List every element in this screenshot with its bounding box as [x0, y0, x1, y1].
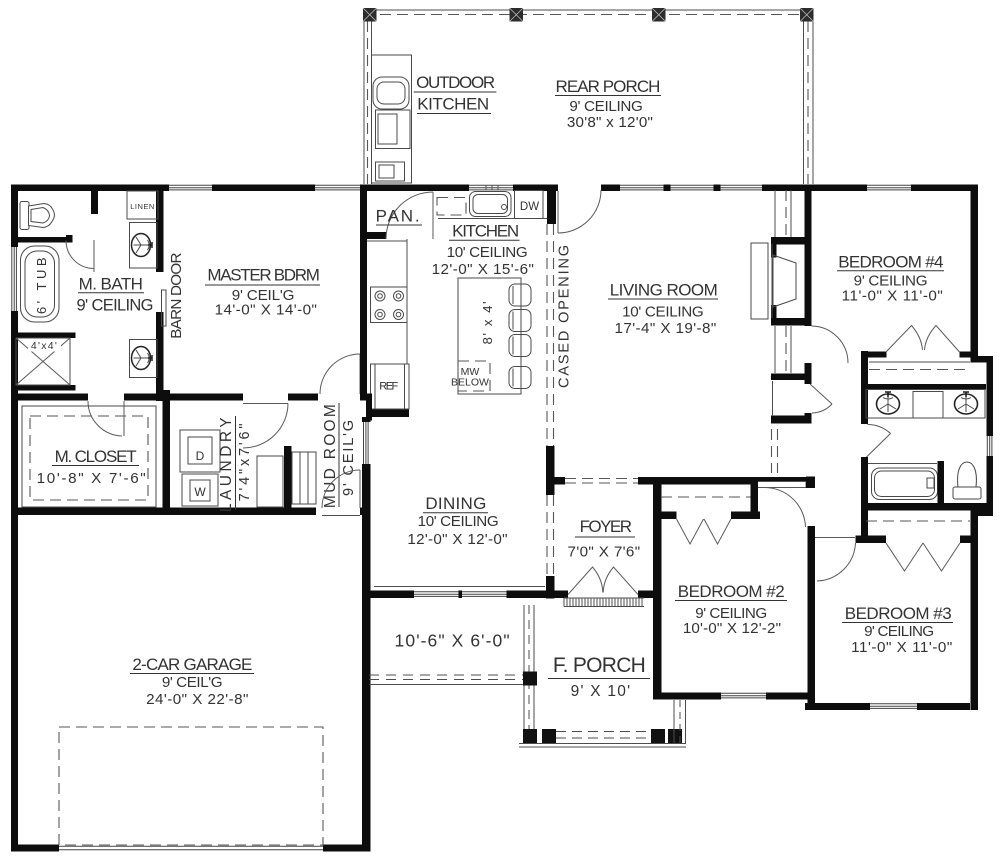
- svg-text:6' TUB: 6' TUB: [34, 254, 49, 314]
- svg-text:9' CEILING: 9' CEILING: [864, 623, 933, 640]
- svg-text:9' CEILING: 9' CEILING: [569, 98, 642, 115]
- svg-text:LIVING ROOM: LIVING ROOM: [610, 280, 718, 299]
- svg-text:PAN.: PAN.: [376, 207, 422, 226]
- svg-text:MUD ROOM: MUD ROOM: [322, 402, 339, 508]
- svg-text:11'-0" X 11'-0": 11'-0" X 11'-0": [851, 639, 953, 656]
- svg-text:14'-0" X 14'-0": 14'-0" X 14'-0": [215, 302, 318, 319]
- svg-text:7'0" X 7'6": 7'0" X 7'6": [568, 544, 641, 561]
- svg-text:MASTER BDRM: MASTER BDRM: [207, 266, 318, 285]
- svg-text:10'-8" X 7'-6": 10'-8" X 7'-6": [37, 470, 148, 487]
- svg-text:M. CLOSET: M. CLOSET: [55, 447, 137, 466]
- svg-text:9' CEILING: 9' CEILING: [77, 297, 153, 315]
- svg-text:9' CEIL'G: 9' CEIL'G: [162, 674, 222, 691]
- svg-text:17'-4" X 19'-8": 17'-4" X 19'-8": [614, 320, 716, 337]
- svg-text:8' x 4': 8' x 4': [480, 300, 495, 345]
- svg-text:12'-0" X 15'-6": 12'-0" X 15'-6": [432, 261, 535, 278]
- svg-text:M. BATH: M. BATH: [79, 275, 143, 294]
- svg-text:D: D: [196, 449, 205, 463]
- svg-text:BARN DOOR: BARN DOOR: [168, 253, 185, 339]
- svg-text:REAR PORCH: REAR PORCH: [555, 77, 659, 96]
- svg-text:F. PORCH: F. PORCH: [553, 654, 645, 677]
- svg-text:BEDROOM #2: BEDROOM #2: [678, 582, 785, 601]
- svg-text:BELOW: BELOW: [451, 377, 489, 389]
- svg-text:30'8" x 12'0": 30'8" x 12'0": [567, 114, 653, 131]
- svg-text:OUTDOOR: OUTDOOR: [416, 73, 495, 92]
- svg-text:11'-0" X 11'-0": 11'-0" X 11'-0": [842, 287, 944, 304]
- svg-text:9' X 10': 9' X 10': [571, 683, 632, 700]
- svg-text:10'-0" X 12'-2": 10'-0" X 12'-2": [683, 620, 781, 637]
- svg-text:DW: DW: [520, 201, 539, 213]
- svg-text:2-CAR GARAGE: 2-CAR GARAGE: [132, 655, 252, 674]
- svg-text:W: W: [194, 485, 206, 499]
- svg-text:BEDROOM #4: BEDROOM #4: [838, 252, 943, 271]
- svg-text:CASED OPENING: CASED OPENING: [557, 243, 573, 388]
- svg-text:LAUNDRY: LAUNDRY: [218, 414, 235, 512]
- svg-text:12'-0" X 12'-0": 12'-0" X 12'-0": [407, 531, 507, 548]
- svg-text:BEDROOM #3: BEDROOM #3: [845, 604, 952, 623]
- svg-text:7'4"x7'6": 7'4"x7'6": [237, 421, 253, 502]
- svg-text:24'-0" X 22'-8": 24'-0" X 22'-8": [146, 691, 249, 708]
- svg-text:10' CEILING: 10' CEILING: [418, 513, 499, 530]
- svg-text:FOYER: FOYER: [580, 517, 632, 536]
- svg-text:10'-6" X 6'-0": 10'-6" X 6'-0": [395, 631, 511, 651]
- svg-text:9' CEIL'G: 9' CEIL'G: [341, 418, 357, 496]
- svg-text:4'x4': 4'x4': [31, 340, 58, 352]
- svg-text:DINING: DINING: [425, 494, 486, 513]
- svg-text:10' CEILING: 10' CEILING: [447, 244, 528, 261]
- svg-text:KITCHEN: KITCHEN: [417, 95, 489, 114]
- svg-text:LINEN: LINEN: [130, 202, 155, 211]
- svg-text:REF: REF: [379, 381, 398, 393]
- svg-text:KITCHEN: KITCHEN: [452, 222, 518, 241]
- svg-text:10' CEILING: 10' CEILING: [622, 303, 703, 320]
